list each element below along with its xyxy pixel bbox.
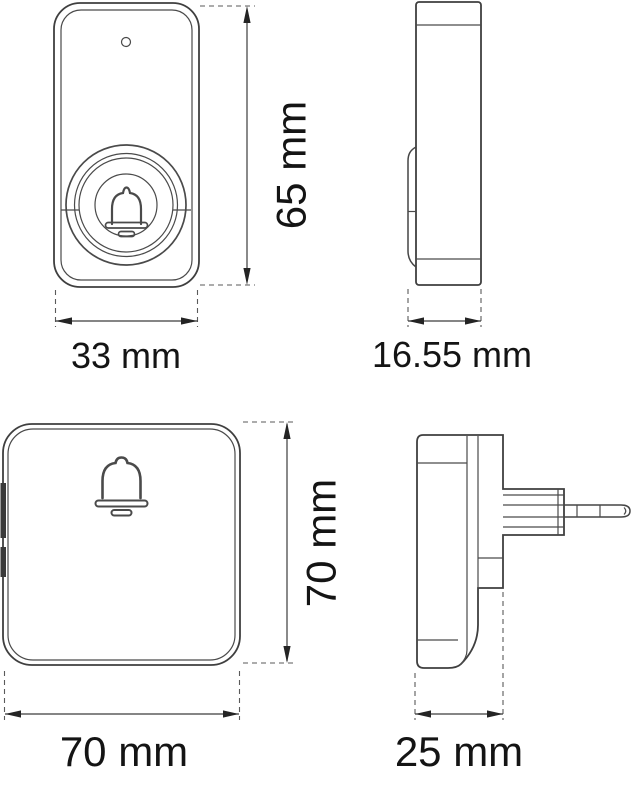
arrow-right-icon <box>181 317 198 324</box>
arrow-up-icon <box>243 6 250 23</box>
chime-front-view: 70 mm 70 mm <box>1 422 345 775</box>
plug-pin <box>564 505 630 517</box>
button-side-view: 16.55 mm <box>372 2 532 375</box>
chime-side-view: 25 mm <box>395 435 630 775</box>
chime-body-outline <box>3 424 240 665</box>
bell-base-bar <box>96 501 148 507</box>
arrow-down-icon <box>283 646 290 663</box>
arrow-left-icon <box>5 710 21 717</box>
chime-front-cap-edge <box>460 436 467 665</box>
arrow-down-icon <box>243 268 250 285</box>
dimension-label-button-height: 65 mm <box>268 101 315 229</box>
arrow-left-icon <box>56 317 73 324</box>
dimension-drawing: 65 mm 33 mm 16.55 mm <box>0 0 640 785</box>
button-surround-outer-circle <box>66 145 186 265</box>
button-front-view: 65 mm 33 mm <box>54 3 315 376</box>
extension-lines <box>243 422 294 663</box>
arrow-right-icon <box>487 710 503 717</box>
led-indicator <box>122 38 131 47</box>
button-side-body <box>416 2 481 285</box>
bell-clapper-dash <box>119 232 135 237</box>
dimension-chime-height: 70 mm <box>243 422 345 663</box>
chime-side-silhouette <box>417 435 564 668</box>
plug-block-ribs <box>503 495 564 527</box>
bell-dome <box>103 458 141 499</box>
arrow-left-icon <box>408 317 424 324</box>
plug-pin-outline <box>564 505 630 517</box>
dimension-chime-depth: 25 mm <box>395 592 523 775</box>
extension-lines <box>415 592 503 720</box>
plug-pin-tip-detail <box>624 508 626 515</box>
bell-icon <box>96 458 148 516</box>
dimension-button-width: 33 mm <box>56 290 198 376</box>
dimension-button-height: 65 mm <box>200 6 315 285</box>
dimension-label-chime-width: 70 mm <box>60 728 188 775</box>
plug-block <box>503 489 564 535</box>
arrow-right-icon <box>223 710 239 717</box>
button-ring-outer-circle <box>75 154 178 257</box>
dimension-chime-width: 70 mm <box>5 671 240 775</box>
dimension-drawing-canvas: 65 mm 33 mm 16.55 mm <box>0 0 640 785</box>
bell-skirt-bar <box>106 223 148 229</box>
arrow-left-icon <box>415 710 431 717</box>
bell-icon <box>106 188 148 237</box>
dimension-label-chime-depth: 25 mm <box>395 728 523 775</box>
button-side-bulge <box>408 147 416 267</box>
chime-side-button-lower <box>1 547 7 577</box>
extension-lines <box>5 671 240 720</box>
dimension-button-depth: 16.55 mm <box>372 289 532 375</box>
plug-pin-segments <box>577 505 600 517</box>
bell-clapper-dash <box>112 510 132 516</box>
button-ring-inner-circle <box>79 158 173 252</box>
dimension-label-button-depth: 16.55 mm <box>372 334 532 375</box>
arrow-right-icon <box>465 317 481 324</box>
dimension-label-button-width: 33 mm <box>71 335 181 376</box>
arrow-up-icon <box>283 422 290 439</box>
bell-dome <box>112 188 141 225</box>
chime-side-button-upper <box>1 483 7 538</box>
chime-body-inner-outline <box>8 429 235 660</box>
dimension-label-chime-height: 70 mm <box>298 479 345 607</box>
